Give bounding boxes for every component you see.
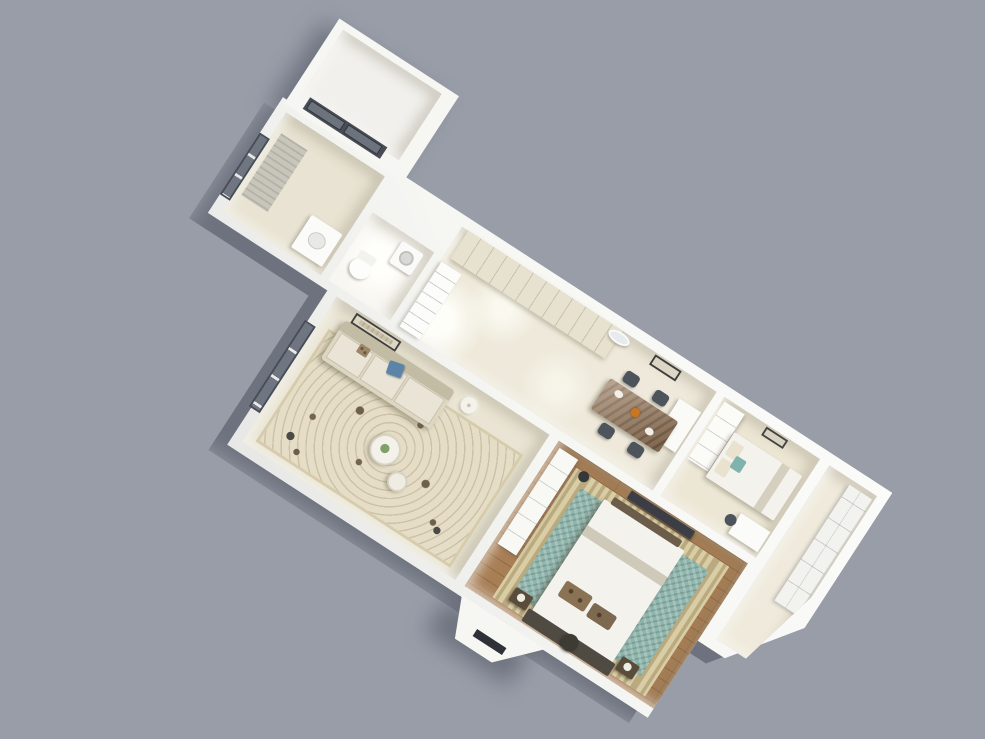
plate [643, 426, 655, 437]
floor-lamp [457, 394, 480, 417]
blanket-fold [753, 463, 790, 513]
dining-chair [626, 440, 646, 459]
tip-window [473, 629, 507, 655]
plate [613, 389, 625, 400]
washing-machine [389, 241, 425, 277]
amber-vase [629, 406, 642, 419]
patterned-pillow [557, 580, 593, 612]
patterned-pillow [585, 602, 617, 631]
dining-chair [596, 421, 616, 440]
built-in-wardrobe [450, 231, 622, 359]
toilet [345, 254, 375, 283]
render-backdrop [0, 0, 985, 739]
apartment-floor-plan [108, 97, 893, 739]
blanket-fold [581, 525, 667, 586]
